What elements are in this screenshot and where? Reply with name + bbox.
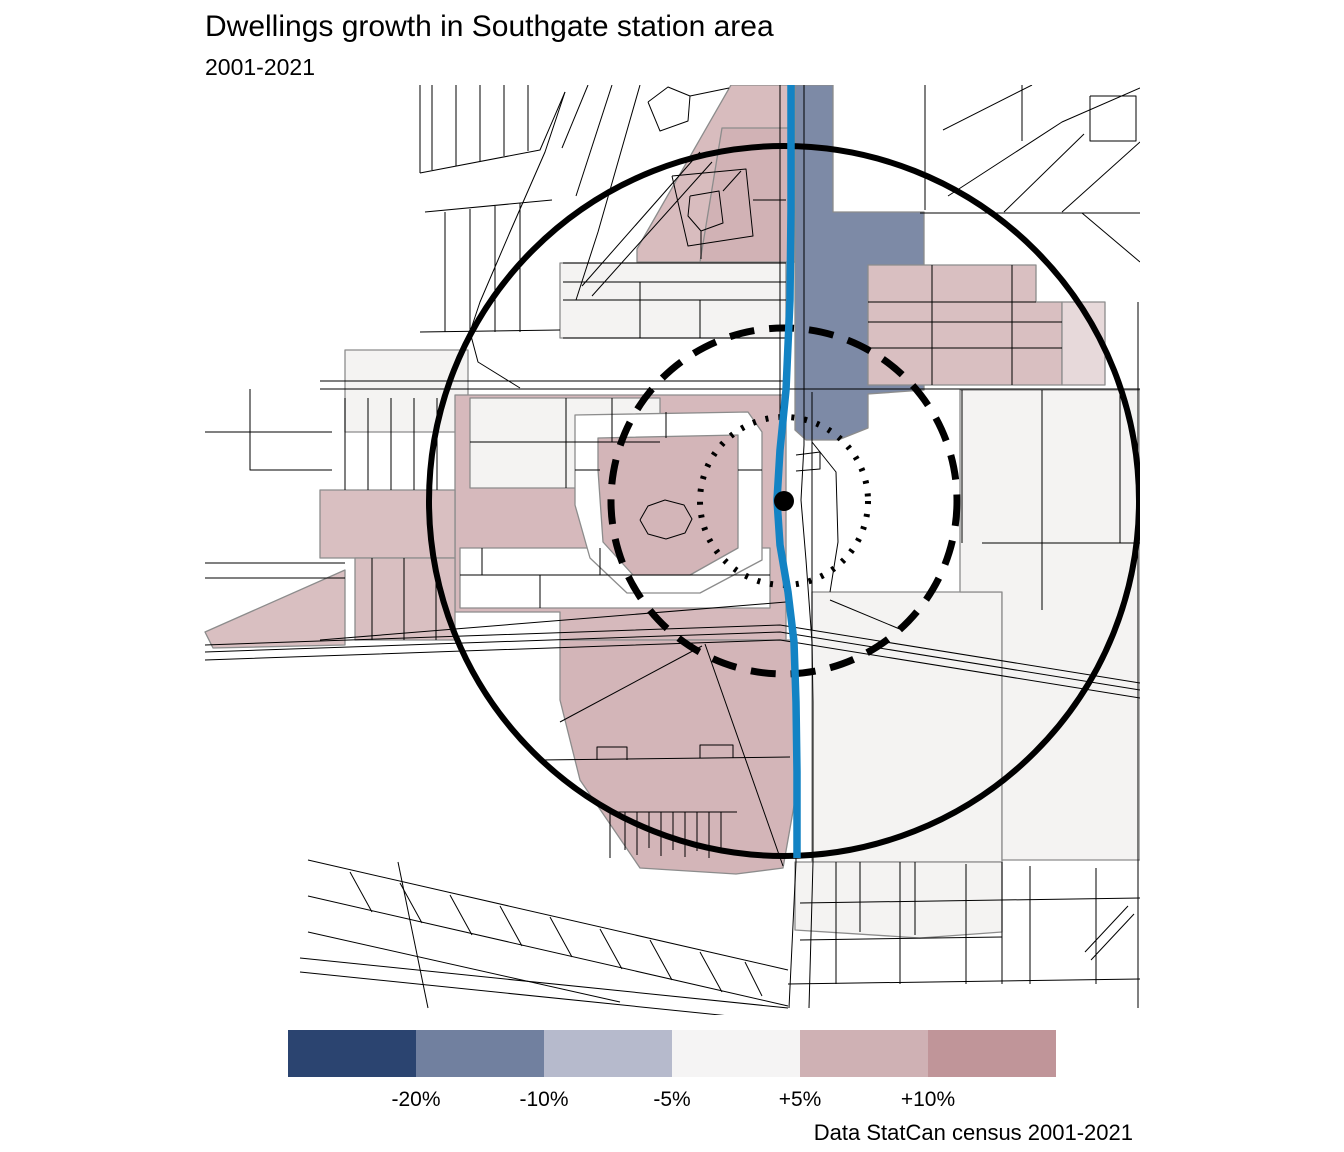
street (800, 937, 1002, 940)
legend-labels: -20%-10%-5%+5%+10% (288, 1088, 1056, 1114)
legend-colorbar (288, 1030, 1056, 1077)
figure: Dwellings growth in Southgate station ar… (0, 0, 1344, 1152)
map-content (205, 85, 1140, 1022)
street (690, 88, 729, 96)
legend-swatch-minus-20-to-minus-10 (416, 1030, 544, 1077)
legend-swatch-minus-10-to-minus-5 (544, 1030, 672, 1077)
street (1090, 96, 1136, 141)
map-canvas (0, 0, 1344, 1152)
legend-swatch-above-plus-10 (928, 1030, 1056, 1077)
street (250, 389, 332, 470)
street (788, 979, 1140, 984)
legend-label: +5% (779, 1088, 822, 1112)
street (948, 88, 1140, 196)
street (308, 860, 788, 970)
street (648, 87, 690, 131)
street (1004, 134, 1084, 212)
street (1091, 914, 1134, 960)
legend-label: -5% (653, 1088, 690, 1112)
legend-label: -20% (391, 1088, 440, 1112)
legend-label: +10% (901, 1088, 955, 1112)
region-blue-band (795, 85, 924, 440)
data-source-caption: Data StatCan census 2001-2021 (814, 1120, 1133, 1146)
street (1082, 213, 1140, 262)
street (300, 958, 788, 1008)
legend-label: -10% (519, 1088, 568, 1112)
street (1062, 142, 1140, 212)
region-pink-west-wedge (205, 570, 345, 648)
legend-swatch-plus-5-to-plus-10 (800, 1030, 928, 1077)
street (308, 896, 788, 1006)
street (420, 330, 560, 332)
street (745, 962, 762, 996)
legend-swatch-below-minus-20 (288, 1030, 416, 1077)
street (308, 932, 620, 1002)
street (1085, 906, 1128, 952)
street (420, 92, 565, 173)
street (943, 85, 1032, 130)
region-offwhite-east-of-station (812, 592, 1002, 862)
street (650, 940, 672, 980)
station-point (774, 491, 794, 511)
street (562, 85, 588, 148)
legend-swatch-minus-5-to-plus-5 (672, 1030, 800, 1077)
street (600, 929, 622, 969)
street (796, 452, 820, 471)
street (550, 917, 572, 957)
street (470, 92, 565, 388)
street (500, 906, 522, 946)
street (700, 952, 722, 992)
street (425, 200, 552, 212)
